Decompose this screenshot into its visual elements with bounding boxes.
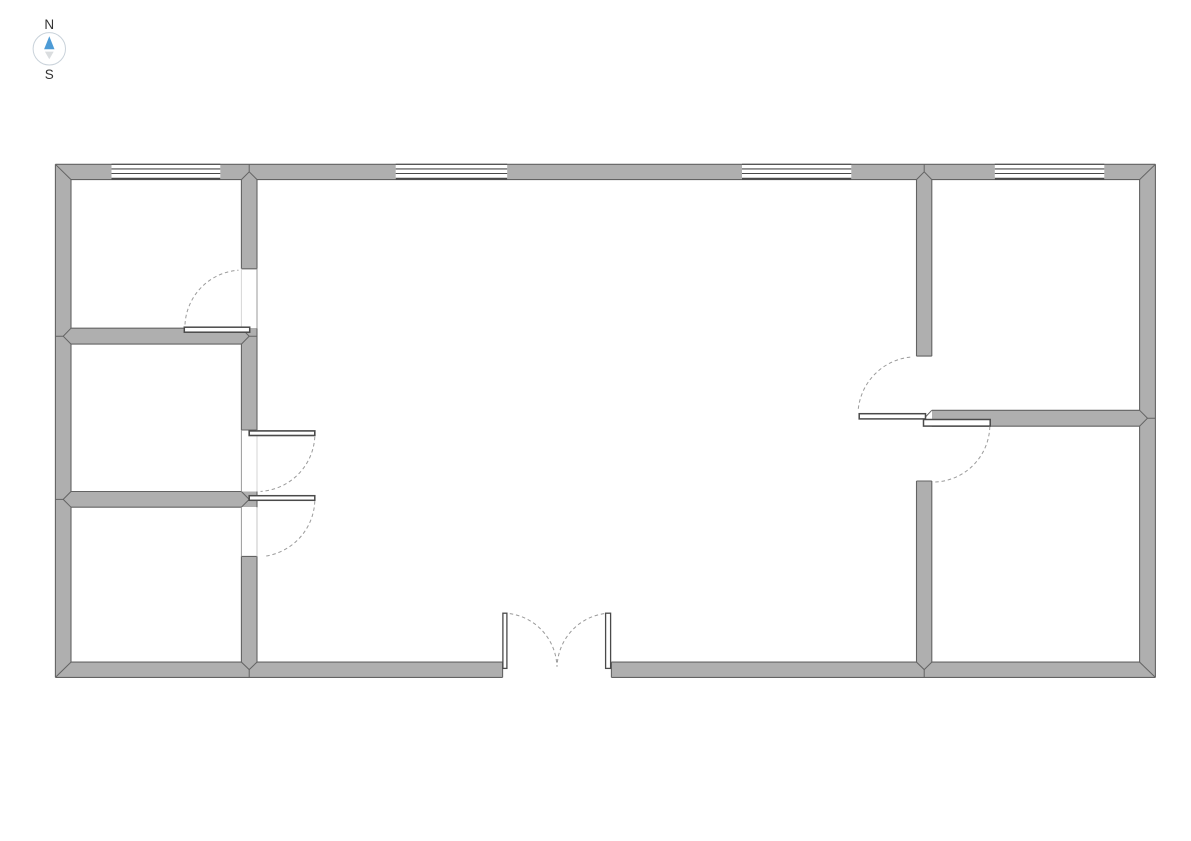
svg-text:N: N	[44, 17, 54, 32]
svg-text:S: S	[45, 67, 54, 82]
